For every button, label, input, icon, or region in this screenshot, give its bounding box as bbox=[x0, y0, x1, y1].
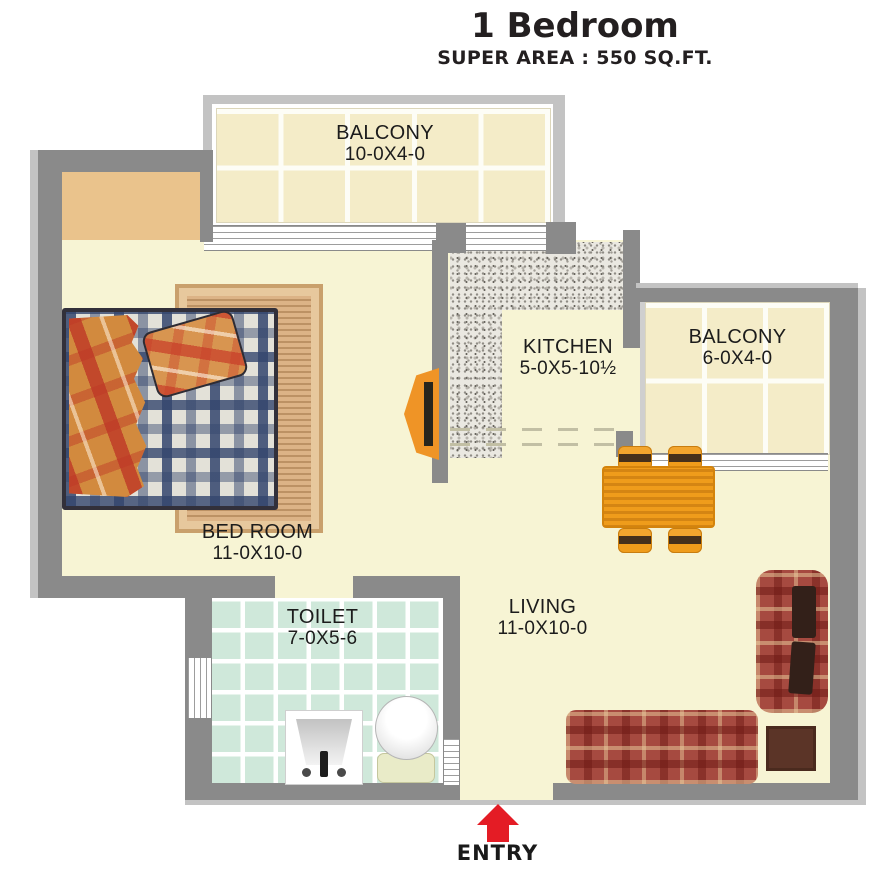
wall-right-outer-edge bbox=[858, 288, 866, 805]
wall-living-bottom bbox=[553, 783, 858, 800]
water-closet-bowl bbox=[375, 696, 438, 760]
room-name: BALCONY bbox=[640, 326, 835, 348]
room-dims: 5-0X5-10½ bbox=[478, 358, 658, 379]
balcony-right-tiles bbox=[645, 302, 830, 455]
basin-knob-right bbox=[337, 768, 346, 777]
water-closet bbox=[374, 696, 438, 783]
floorplan: BALCONY 10-0X4-0 KITCHEN 5-0X5-10½ BALCO… bbox=[0, 0, 875, 870]
kitchen-boundary-dash-2 bbox=[450, 443, 618, 446]
plan-header: 1 Bedroom SUPER AREA : 550 SQ.FT. bbox=[395, 8, 755, 69]
tv-screen bbox=[424, 382, 433, 446]
basin-knob-left bbox=[302, 768, 311, 777]
room-dims: 11-0X10-0 bbox=[455, 618, 630, 639]
entry-arrow-icon bbox=[470, 804, 526, 842]
room-name: LIVING bbox=[455, 596, 630, 618]
toilet-right-window bbox=[444, 738, 459, 786]
floor-entry-gap bbox=[460, 783, 553, 800]
room-dims: 6-0X4-0 bbox=[640, 348, 835, 369]
side-table bbox=[766, 726, 816, 771]
room-label-toilet: TOILET 7-0X5-6 bbox=[235, 606, 410, 650]
balcony-top-wall-outer-right bbox=[553, 95, 565, 225]
wardrobe-closet bbox=[62, 172, 200, 240]
page-subtitle: SUPER AREA : 550 SQ.FT. bbox=[395, 47, 755, 69]
wall-balcony-right-top bbox=[636, 288, 858, 302]
balcony-top-wall-outer-top bbox=[203, 95, 565, 104]
sofa-cushion bbox=[792, 586, 816, 638]
toilet-left-window bbox=[187, 658, 212, 718]
wall-closet-right bbox=[200, 150, 213, 242]
bedroom-top-window bbox=[204, 225, 561, 251]
room-label-living: LIVING 11-0X10-0 bbox=[455, 596, 630, 640]
room-label-balcony-top: BALCONY 10-0X4-0 bbox=[285, 122, 485, 166]
floor-toilet-door-gap bbox=[275, 576, 353, 598]
wall-stub-kitchen-right-top bbox=[546, 222, 576, 254]
room-label-bedroom: BED ROOM 11-0X10-0 bbox=[150, 521, 365, 565]
room-label-balcony-right: BALCONY 6-0X4-0 bbox=[640, 326, 835, 370]
entry-label: ENTRY bbox=[440, 841, 555, 865]
room-name: TOILET bbox=[235, 606, 410, 628]
room-label-kitchen: KITCHEN 5-0X5-10½ bbox=[478, 336, 658, 380]
wall-left-outer-edge bbox=[30, 150, 38, 598]
room-name: KITCHEN bbox=[478, 336, 658, 358]
dining-table bbox=[602, 466, 715, 528]
sofa-cushion bbox=[788, 641, 816, 695]
sofa-three-seater bbox=[566, 710, 758, 784]
room-dims: 11-0X10-0 bbox=[150, 543, 365, 564]
page-title: 1 Bedroom bbox=[395, 8, 755, 45]
room-dims: 10-0X4-0 bbox=[285, 144, 485, 165]
wash-basin-unit bbox=[285, 710, 363, 785]
wall-left bbox=[38, 150, 62, 598]
kitchen-boundary-dash-1 bbox=[450, 428, 618, 431]
entry-arrow-stem bbox=[487, 825, 509, 842]
dining-chair-bottom-right bbox=[668, 528, 702, 553]
entry-arrow-head bbox=[477, 804, 519, 825]
room-dims: 7-0X5-6 bbox=[235, 628, 410, 649]
room-name: BED ROOM bbox=[150, 521, 365, 543]
room-name: BALCONY bbox=[285, 122, 485, 144]
wall-bedroom-bottom-left bbox=[38, 576, 275, 598]
basin-tap bbox=[320, 751, 328, 777]
dining-chair-bottom-left bbox=[618, 528, 652, 553]
wall-toilet-bottom bbox=[185, 783, 460, 800]
sofa-two-seater bbox=[756, 570, 828, 713]
wall-top-left bbox=[38, 150, 213, 172]
